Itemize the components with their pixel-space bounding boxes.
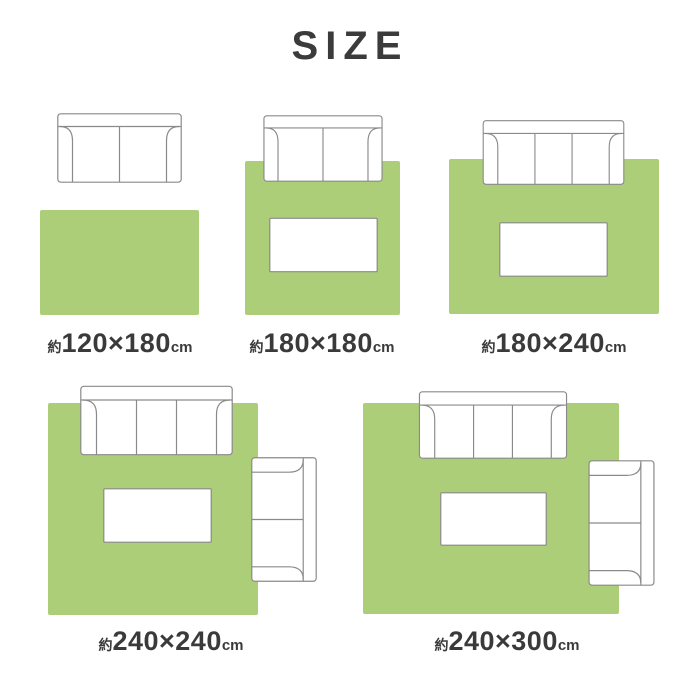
- size-unit: cm: [171, 339, 193, 356]
- side-two-seat-sofa-icon: [588, 460, 655, 586]
- three-seat-sofa-icon: [80, 384, 233, 457]
- rug-swatch-240x240: [48, 403, 258, 615]
- rug-swatch-180x240: [449, 159, 659, 314]
- page-title: SIZE: [0, 24, 700, 69]
- rug-swatch-240x300: [363, 403, 619, 614]
- size-tile-240x300: 約240×300cm: [0, 0, 700, 700]
- size-label-180x180: 約180×180cm: [222, 328, 422, 363]
- rug-swatch-180x180: [245, 161, 400, 315]
- rug-swatch-120x180: [40, 210, 199, 315]
- size-tile-120x180: 約120×180cm: [0, 0, 700, 700]
- side-two-seat-sofa-icon: [251, 456, 317, 583]
- size-label-240x240: 約240×240cm: [71, 626, 271, 661]
- size-unit: cm: [558, 637, 580, 654]
- approx-prefix: 約: [47, 339, 61, 355]
- size-unit: cm: [373, 339, 395, 356]
- three-seat-sofa-icon: [417, 391, 569, 459]
- two-seat-sofa-icon: [57, 113, 182, 183]
- low-table-icon: [499, 222, 608, 277]
- size-value: 120×180: [61, 328, 170, 358]
- size-value: 240×300: [448, 626, 557, 656]
- approx-prefix: 約: [98, 637, 112, 653]
- size-label-180x240: 約180×240cm: [454, 328, 654, 363]
- approx-prefix: 約: [481, 339, 495, 355]
- rug-size-chart: SIZE 約120×180cm 約180×180cm 約180×240cm 約2…: [0, 0, 700, 700]
- size-value: 180×240: [495, 328, 604, 358]
- size-label-240x300: 約240×300cm: [407, 626, 607, 661]
- three-seat-sofa-icon: [477, 120, 630, 185]
- size-unit: cm: [605, 339, 627, 356]
- low-table-icon: [103, 488, 212, 543]
- size-label-120x180: 約120×180cm: [20, 328, 220, 363]
- size-tile-240x240: 約240×240cm: [0, 0, 700, 700]
- size-tile-180x240: 約180×240cm: [0, 0, 700, 700]
- low-table-icon: [269, 217, 378, 273]
- approx-prefix: 約: [249, 339, 263, 355]
- two-seat-sofa-icon: [261, 115, 385, 182]
- size-value: 240×240: [112, 626, 221, 656]
- approx-prefix: 約: [434, 637, 448, 653]
- size-tile-180x180: 約180×180cm: [0, 0, 700, 700]
- size-value: 180×180: [263, 328, 372, 358]
- low-table-icon: [439, 492, 548, 546]
- size-unit: cm: [222, 637, 244, 654]
